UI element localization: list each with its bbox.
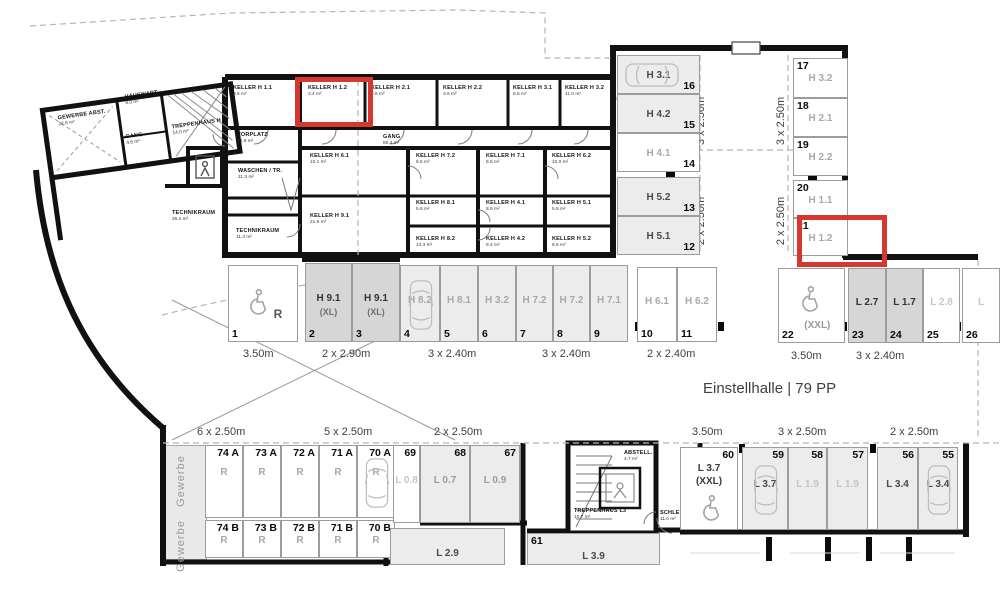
keller-h8-2[interactable]: KELLER H 8.2 13.3 m² [416, 236, 455, 249]
parking-stall-25[interactable]: 25L 2.8 [923, 268, 960, 343]
room-name: TECHNIKRAUM [172, 210, 215, 217]
stall-label: H 9.1 [353, 293, 399, 304]
stall-number: 13 [683, 202, 695, 214]
keller-area: 8.5 m² [486, 207, 525, 213]
parking-stall-61[interactable]: 61L 3.9 [527, 533, 660, 565]
stall-label: L 2.8 [924, 297, 959, 308]
stall-number: 17 [797, 60, 809, 72]
parking-stall-60[interactable]: 60L 3.7(XXL) [680, 447, 738, 530]
stall-label: H 2.2 [794, 152, 847, 163]
stall-label: H 8.1 [441, 295, 477, 306]
parking-stall-26[interactable]: 26L [962, 268, 1000, 343]
room-gang-long: GANG 80.4 m² [383, 134, 400, 147]
parking-stall-57[interactable]: 57L 1.9 [827, 447, 868, 530]
room-hauswart: HAUSWART 8.0 m² [124, 90, 159, 107]
dim-label: 3.50m [243, 348, 274, 360]
stall-label: L 3.9 [528, 551, 659, 562]
stall-number: 4 [404, 328, 410, 340]
parking-stall-71-a[interactable]: 71 AR [319, 445, 357, 518]
keller-area: 10.1 m² [310, 160, 349, 166]
stall-label: L 0.7 [421, 475, 469, 486]
keller-area: 5.6 m² [416, 207, 455, 213]
stall-number: 14 [683, 158, 695, 170]
parking-stall-74-a[interactable]: 74 AR [205, 445, 243, 518]
stall-number: 5 [444, 328, 450, 340]
keller-area: 21.9 m² [310, 220, 349, 226]
dim-label: 2 x 2.50m [890, 426, 938, 438]
parking-stall-70-a[interactable]: 70 AR [357, 445, 395, 518]
parking-stall-71-b[interactable]: 71 BR [319, 520, 357, 558]
parking-stall-68[interactable]: 68L 0.7 [420, 445, 470, 523]
stall-label: H 3.2 [794, 73, 847, 84]
stall-number: 24 [890, 329, 902, 341]
stall-label: R [320, 467, 356, 478]
parking-stall-14[interactable]: 14H 4.1 [617, 133, 700, 172]
dim-label: 3 x 2.40m [428, 348, 476, 360]
keller-h2-1[interactable]: KELLER H 2.1 3.6 m² [371, 85, 410, 98]
keller-area: 5.5 m² [552, 207, 591, 213]
parking-stall-20[interactable]: 20H 1.1 [793, 180, 848, 218]
dim-label: 3 x 2.40m [542, 348, 590, 360]
car-icon [926, 464, 952, 521]
stall-number: 9 [594, 328, 600, 340]
stall-label: H 6.2 [678, 296, 716, 307]
stall-number: 8 [557, 328, 563, 340]
stall-label: H 1.1 [794, 195, 847, 206]
parking-stall-3[interactable]: 3H 9.1(XL) [352, 263, 400, 342]
keller-area: 3.6 m² [233, 92, 272, 98]
dim-label: 3 x 2.40m [856, 350, 904, 362]
stall-number: 70 B [369, 522, 391, 534]
stall-number: 23 [852, 329, 864, 341]
stall-number: 1 [232, 328, 238, 340]
parking-stall-72-a[interactable]: 72 AR [281, 445, 319, 518]
stall-size-tag: (XL) [306, 307, 351, 317]
parking-stall-12[interactable]: 12H 5.1 [617, 216, 700, 255]
room-treppenhaus-h: TREPPENHAUS H 14.0 m² [171, 118, 222, 138]
parking-stall-74-b[interactable]: 74 BR [205, 520, 243, 558]
stall-number: 61 [531, 535, 543, 547]
stall-label: L [963, 297, 999, 308]
stall-label: H 9.1 [306, 293, 351, 304]
stall-number: 26 [966, 329, 978, 341]
stall-number: 10 [641, 328, 653, 340]
stall-label: H 7.2 [517, 295, 552, 306]
keller-area: 3.6 m² [443, 92, 482, 98]
keller-h2-2[interactable]: KELLER H 2.2 3.6 m² [443, 85, 482, 98]
car-icon [624, 62, 680, 93]
keller-h9-1[interactable]: KELLER H 9.1 21.9 m² [310, 213, 349, 226]
room-area: 13.8 m² [237, 139, 268, 145]
stall-label: H 2.1 [794, 113, 847, 124]
stall-number: 20 [797, 182, 809, 194]
room-abstell: ABSTELL. 4.7 m² [624, 450, 653, 463]
parking-stall-19[interactable]: 19H 2.2 [793, 137, 848, 176]
parking-stall-24[interactable]: 24L 1.7 [886, 268, 923, 343]
car-icon [408, 279, 434, 336]
parking-stall-13[interactable]: 13H 5.2 [617, 177, 700, 216]
keller-h3-1[interactable]: KELLER H 3.1 5.6 m² [513, 85, 552, 98]
parking-stall-17[interactable]: 17H 3.2 [793, 58, 848, 98]
stall-number: 15 [683, 119, 695, 131]
dim-label: 2 x 2.40m [647, 348, 695, 360]
keller-h3-2[interactable]: KELLER H 3.2 11.0 m² [565, 85, 604, 98]
parking-stall-73-a[interactable]: 73 AR [243, 445, 281, 518]
parking-stall-18[interactable]: 18H 2.1 [793, 98, 848, 137]
room-waschen-tr: WASCHEN / TR. 11.3 m² [238, 168, 282, 181]
wheelchair-icon [243, 288, 271, 321]
parking-stall-59[interactable]: 59L 3.7 [742, 447, 788, 530]
keller-area: 11.0 m² [565, 92, 604, 98]
room-area: 10.7 m² [574, 515, 626, 521]
stall-number: 25 [927, 329, 939, 341]
stall-label: H 7.1 [591, 295, 627, 306]
stall-number: 2 [309, 328, 315, 340]
stall-number: 6 [482, 328, 488, 340]
keller-h7-2[interactable]: KELLER H 7.2 8.6 m² [416, 153, 455, 166]
stall-label: L 0.8 [394, 475, 419, 486]
dim-label: 2 x 2.90m [322, 348, 370, 360]
wheelchair-icon [795, 285, 823, 318]
stall-number: 67 [504, 447, 516, 459]
parking-stall-55[interactable]: 55L 3.4 [918, 447, 958, 530]
page-title: Einstellhalle | 79 PP [703, 380, 836, 397]
room-name: VORPLATZ [237, 132, 268, 139]
stall-number: 16 [683, 80, 695, 92]
keller-h8-1[interactable]: KELLER H 8.1 5.6 m² [416, 200, 455, 213]
stall-number: 11 [681, 328, 692, 340]
stall-size-tag: (XL) [353, 307, 399, 317]
parking-stall-11[interactable]: 11H 6.2 [677, 267, 717, 342]
stall-label: L 3.7 [681, 463, 737, 474]
room-name: TECHNIKRAUM [236, 228, 279, 235]
stall-label: L 2.7 [849, 297, 885, 308]
dim-label: 3 x 2.50m [778, 426, 826, 438]
keller-h6-1[interactable]: KELLER H 6.1 10.1 m² [310, 153, 349, 166]
stall-number: 58 [811, 449, 823, 461]
parking-stall-8[interactable]: 8H 7.2 [553, 265, 590, 342]
keller-area: 13.3 m² [416, 243, 455, 249]
keller-area: 8.6 m² [416, 160, 455, 166]
stall-label: R [244, 535, 280, 546]
parking-stall-5[interactable]: 5H 8.1 [440, 265, 478, 342]
stall-number: 18 [797, 100, 809, 112]
stall-number: 60 [722, 449, 734, 461]
dim-label: 2 x 2.50m [775, 197, 787, 245]
room-name: ABSTELL. [624, 450, 653, 457]
stall-number: 7 [520, 328, 526, 340]
stall-label: R [358, 535, 394, 546]
stall-label: R [206, 535, 242, 546]
stall-number: 55 [942, 449, 954, 461]
keller-h5-2[interactable]: KELLER H 5.2 8.6 m² [552, 236, 591, 249]
highlight-keller-h1-2 [295, 77, 373, 127]
stall-label: R [320, 535, 356, 546]
room-name: GANG [383, 134, 400, 141]
stall-label: R [282, 535, 318, 546]
stall-number: 22 [782, 329, 794, 341]
room-area: 11.3 m² [238, 175, 282, 181]
stall-number: 56 [902, 449, 914, 461]
parking-stall-22[interactable]: 22(XXL) [778, 268, 845, 343]
parking-stall-15[interactable]: 15H 4.2 [617, 94, 700, 133]
parking-stall-67[interactable]: 67L 0.9 [470, 445, 520, 523]
dim-label: 2 x 2.50m [434, 426, 482, 438]
stall-label: R [282, 467, 318, 478]
stall-label: L 2.9 [391, 548, 504, 559]
room-gewerbe-abst: GEWERBE ABST. 22.6 m² [57, 109, 107, 128]
keller-h4-1[interactable]: KELLER H 4.1 8.5 m² [486, 200, 525, 213]
room-area: 26.2 m² [172, 217, 215, 223]
keller-area: 10.0 m² [552, 160, 591, 166]
stall-number: 70 A [369, 447, 391, 459]
stall-number: 73 B [255, 522, 277, 534]
room-area: 4.7 m² [624, 457, 653, 463]
keller-area: 8.5 m² [486, 160, 525, 166]
stall-number: 19 [797, 139, 809, 151]
stall-label: L 3.4 [878, 479, 917, 490]
car-icon [753, 464, 779, 521]
stall-number: 3 [356, 328, 362, 340]
stall-label: L 1.7 [887, 297, 922, 308]
stall-label: L 0.9 [471, 475, 519, 486]
parking-stall-9[interactable]: 9H 7.1 [590, 265, 628, 342]
room-vorplatz: VORPLATZ 13.8 m² [237, 132, 268, 145]
stall-label: H 6.1 [638, 296, 676, 307]
dim-label: 6 x 2.50m [197, 426, 245, 438]
stall-number: 72 A [293, 447, 315, 459]
stall-label: H 3.2 [479, 295, 515, 306]
parking-stall-2[interactable]: 2H 9.1(XL) [305, 263, 352, 342]
zone-gewerbe-top: Gewerbe [175, 455, 187, 507]
keller-area: 5.6 m² [513, 92, 552, 98]
car-icon [364, 457, 390, 514]
room-area: 4.6 m² [126, 139, 144, 147]
stall-number: 12 [683, 241, 695, 253]
room-name: WASCHEN / TR. [238, 168, 282, 175]
dim-label: 3.50m [791, 350, 822, 362]
stall-label: H 7.2 [554, 295, 589, 306]
stall-size-tag: (XXL) [681, 476, 737, 487]
parking-stall-69[interactable]: 69L 0.8 [393, 445, 420, 523]
parking-stall-58[interactable]: 58L 1.9 [788, 447, 827, 530]
parking-stall-7[interactable]: 7H 7.2 [516, 265, 553, 342]
stall-number: 74 B [217, 522, 239, 534]
room-name: TREPPENHAUS L3 [574, 508, 626, 515]
parking-stall-l-2.9[interactable]: L 2.9 [390, 528, 505, 565]
stall-number: 59 [772, 449, 784, 461]
stall-number: 57 [852, 449, 864, 461]
room-technikraum-1: TECHNIKRAUM 26.2 m² [172, 210, 215, 223]
parking-stall-73-b[interactable]: 73 BR [243, 520, 281, 558]
parking-stall-56[interactable]: 56L 3.4 [877, 447, 918, 530]
room-treppenhaus-l3: TREPPENHAUS L3 10.7 m² [574, 508, 626, 521]
wheelchair-icon [696, 494, 724, 527]
dim-label: 5 x 2.50m [324, 426, 372, 438]
stall-number: 74 A [217, 447, 239, 459]
dim-label: 3 x 2.50m [775, 97, 787, 145]
parking-stall-16[interactable]: 16H 3.1 [617, 55, 700, 94]
keller-h6-2[interactable]: KELLER H 6.2 10.0 m² [552, 153, 591, 166]
highlight-stall-21 [797, 215, 887, 267]
parking-stall-23[interactable]: 23L 2.7 [848, 268, 886, 343]
stall-number: 71 B [331, 522, 353, 534]
room-area: 11.3 m² [236, 235, 279, 241]
parking-stall-6[interactable]: 6H 3.2 [478, 265, 516, 342]
stall-size-tag: (XXL) [791, 320, 844, 331]
keller-h1-1[interactable]: KELLER H 1.1 3.6 m² [233, 85, 272, 98]
room-area: 80.4 m² [383, 141, 400, 147]
room-technikraum-2: TECHNIKRAUM 11.3 m² [236, 228, 279, 241]
stall-number: 73 A [255, 447, 277, 459]
stall-label: R [206, 467, 242, 478]
room-gang-small: GANG 4.6 m² [125, 132, 144, 147]
dim-label: 3.50m [692, 426, 723, 438]
stall-number: 69 [404, 447, 416, 459]
floor-plan: GEWERBE ABST. 22.6 m² HAUSWART 8.0 m² GA… [0, 0, 1000, 602]
keller-h4-2[interactable]: KELLER H 4.2 9.4 m² [486, 236, 525, 249]
stall-label: R [244, 467, 280, 478]
stall-number: 68 [454, 447, 466, 459]
parking-stall-10[interactable]: 10H 6.1 [637, 267, 677, 342]
stall-number: 71 A [331, 447, 353, 459]
keller-h5-1[interactable]: KELLER H 5.1 5.5 m² [552, 200, 591, 213]
keller-h7-1[interactable]: KELLER H 7.1 8.5 m² [486, 153, 525, 166]
stall-label: L 1.9 [828, 479, 867, 490]
zone-gewerbe-bottom: Gewerbe [175, 520, 187, 572]
parking-stall-4[interactable]: 4H 8.2 [400, 265, 440, 342]
keller-area: 9.4 m² [486, 243, 525, 249]
keller-area: 8.6 m² [552, 243, 591, 249]
keller-area: 3.6 m² [371, 92, 410, 98]
stall-label: L 1.9 [789, 479, 826, 490]
stall-number: 72 B [293, 522, 315, 534]
parking-stall-72-b[interactable]: 72 BR [281, 520, 319, 558]
parking-stall-1[interactable]: 1R [228, 265, 298, 342]
